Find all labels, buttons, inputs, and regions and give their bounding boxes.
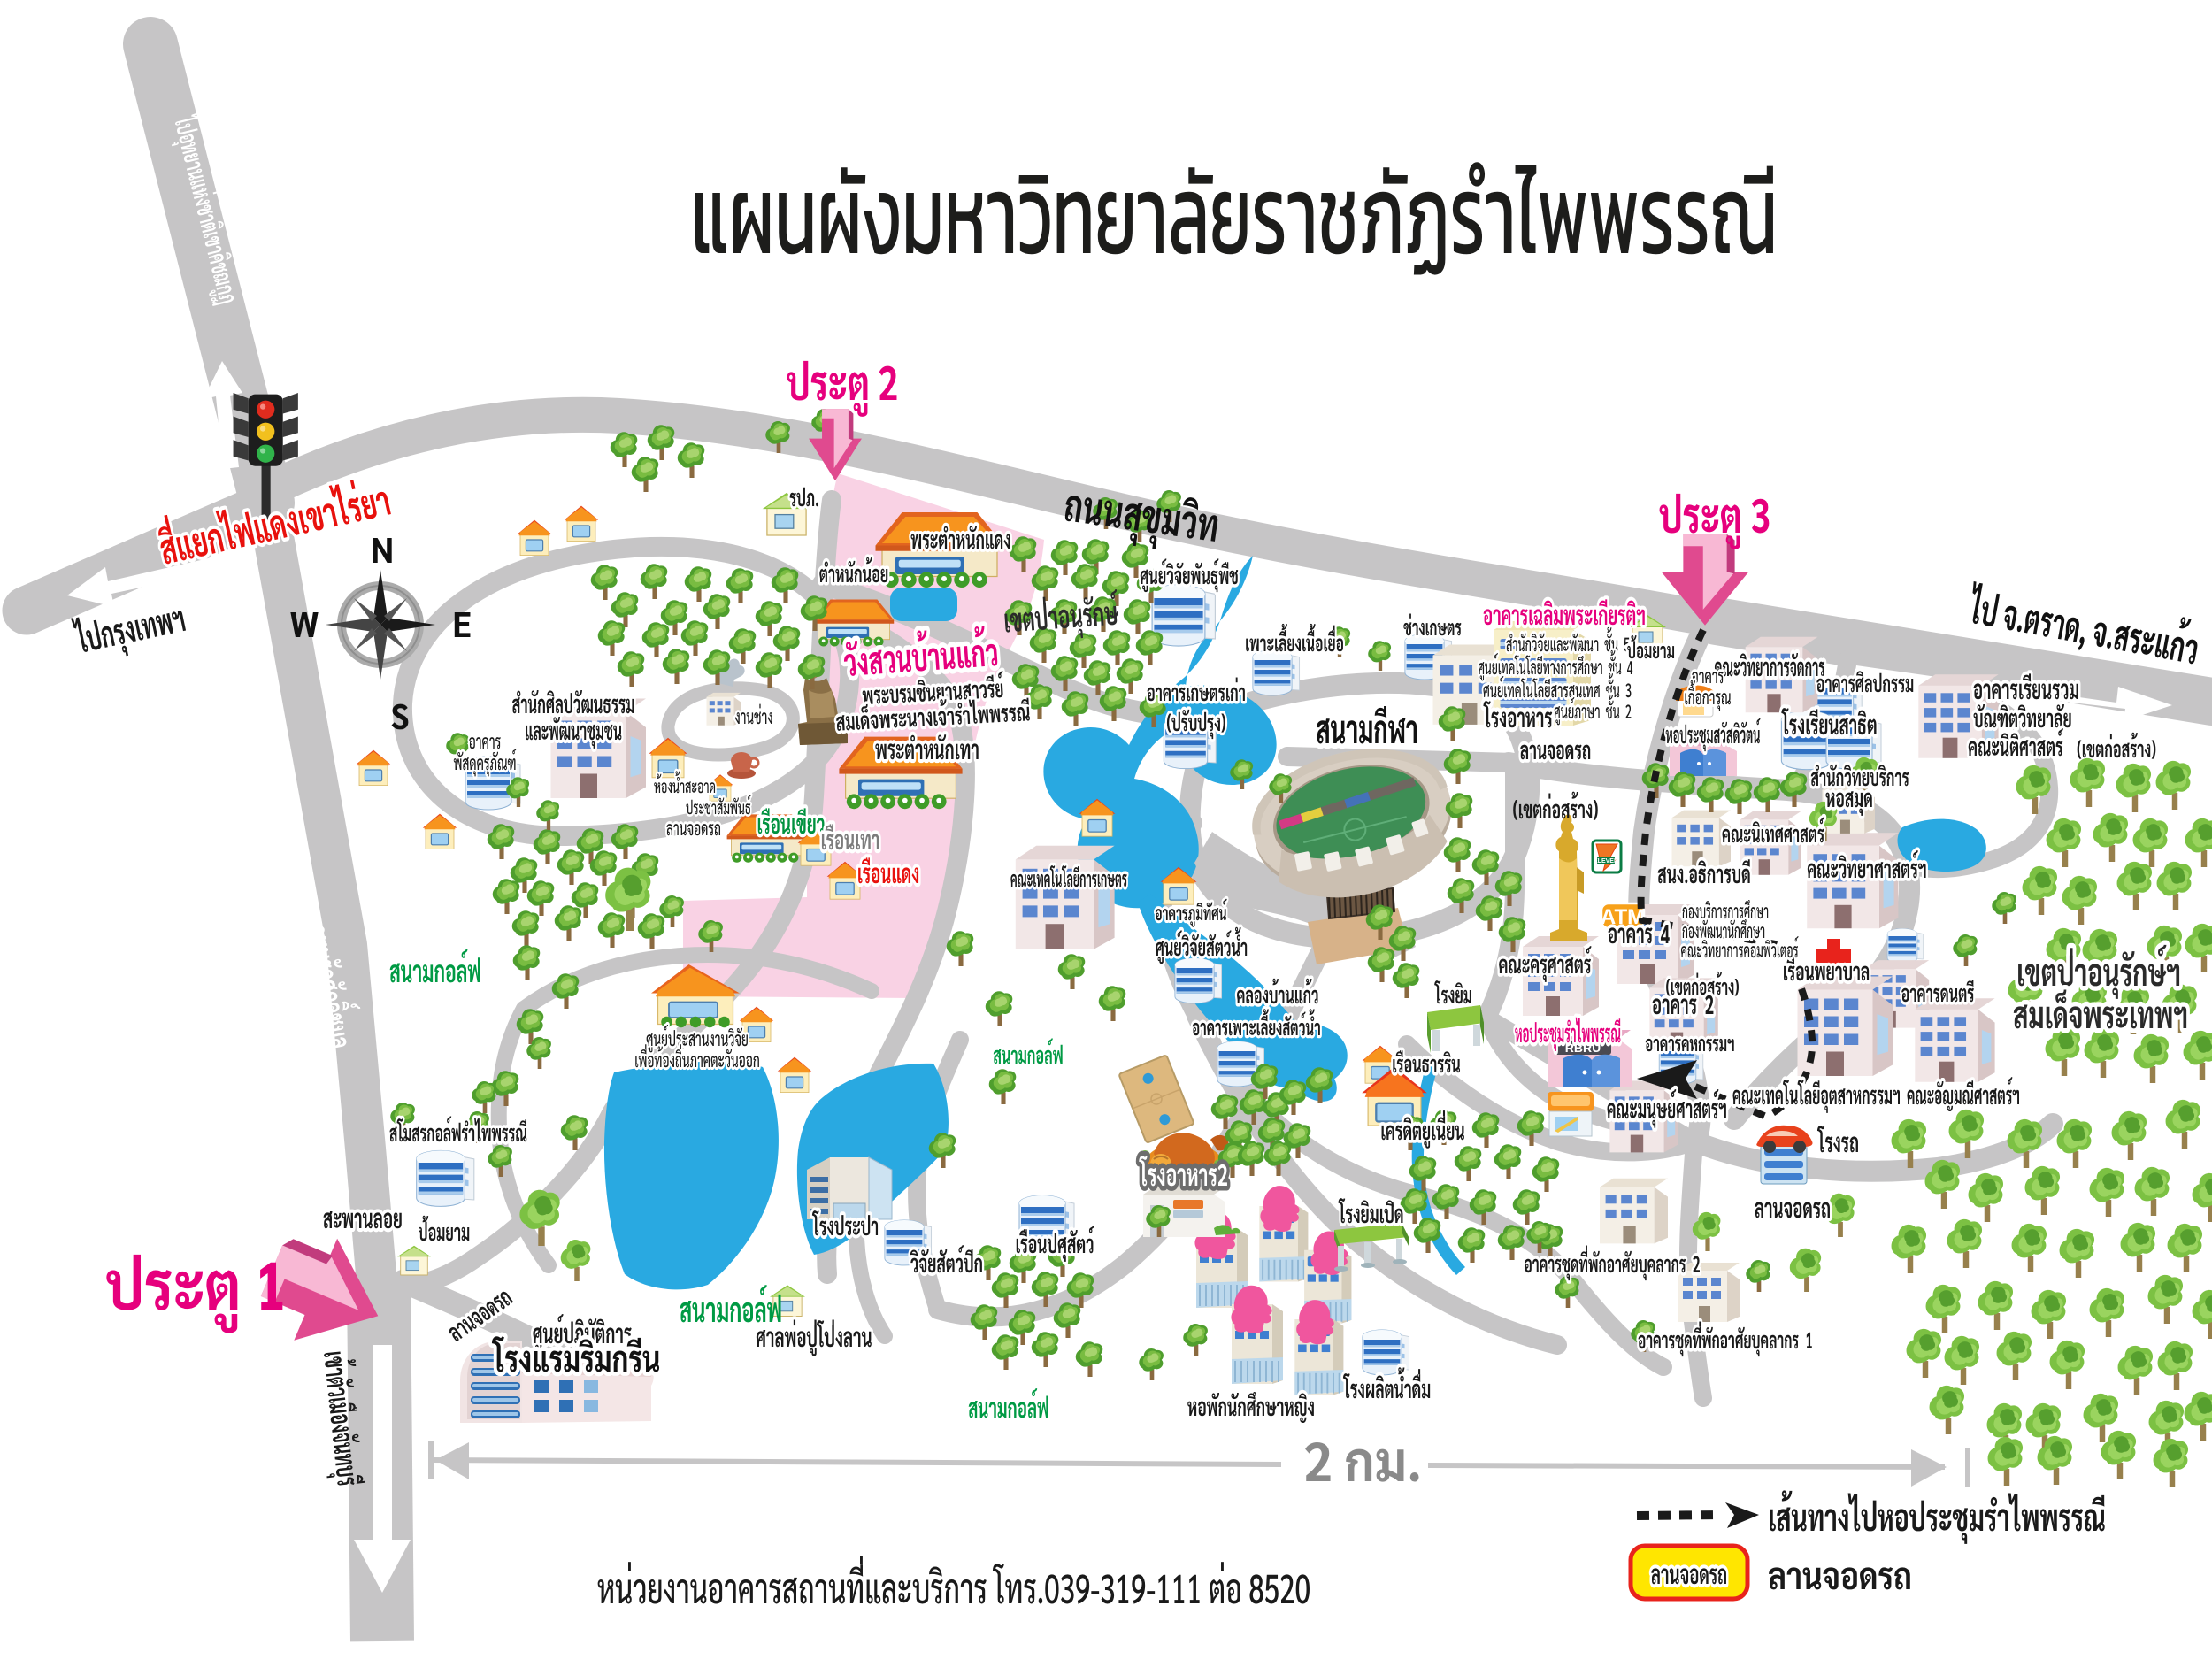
svg-text:ELEVEN: ELEVEN: [1594, 858, 1618, 864]
